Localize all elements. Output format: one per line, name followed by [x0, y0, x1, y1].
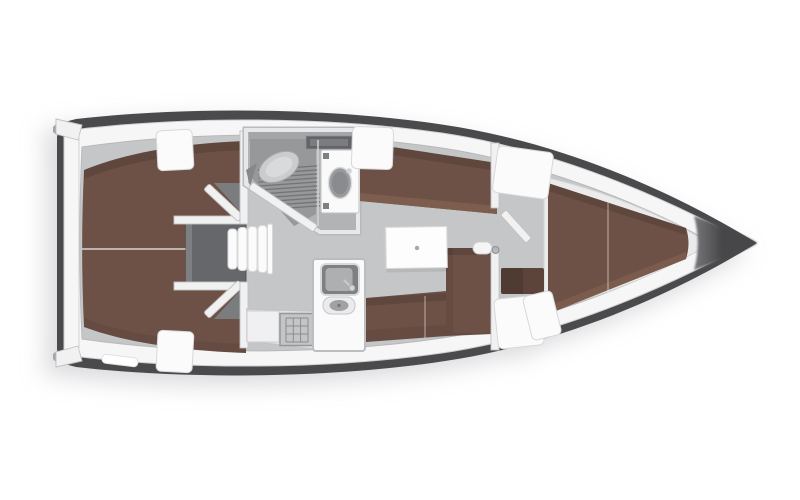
boat	[53, 111, 757, 376]
engine-compartment-edge	[186, 223, 192, 283]
companionway-step-3	[248, 227, 257, 272]
deck-hatch-aft-port	[156, 129, 194, 171]
forward-door-hinge	[492, 247, 499, 254]
bow-wedge	[694, 216, 757, 270]
table-end-cylinder	[473, 242, 492, 254]
round-basin-drain	[337, 304, 340, 307]
galley-sink-well	[326, 268, 353, 291]
galley-faucet	[349, 285, 355, 291]
companionway-step-4	[258, 226, 267, 273]
companionway-step-rail	[268, 224, 273, 274]
head-shelf-inner	[310, 139, 348, 146]
aft-cabins	[82, 141, 247, 353]
washbasin-hinge-top	[323, 153, 329, 159]
galley-cabinet	[247, 311, 279, 342]
companionway-step-1	[228, 229, 237, 269]
forward-locker-top	[492, 145, 554, 199]
forward-step-shadow	[501, 268, 523, 294]
saloon-table	[383, 226, 447, 272]
deck-hatch-mid-port	[351, 126, 393, 169]
washbasin-well	[332, 172, 348, 195]
washbasin-faucet	[346, 168, 352, 174]
floor-plan-canvas	[0, 0, 800, 500]
yacht-floor-plan	[0, 0, 800, 500]
deck-hatch-aft-starboard	[156, 330, 194, 373]
washbasin-hinge-bottom	[323, 203, 329, 209]
companionway-step-2	[238, 228, 247, 271]
